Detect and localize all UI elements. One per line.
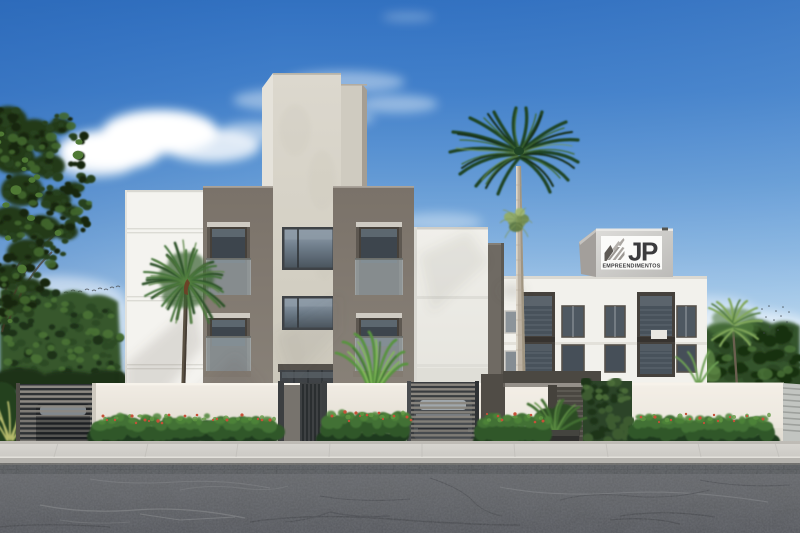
svg-text:EMPREENDIMENTOS: EMPREENDIMENTOS: [602, 264, 660, 270]
svg-text:JP: JP: [628, 237, 658, 267]
